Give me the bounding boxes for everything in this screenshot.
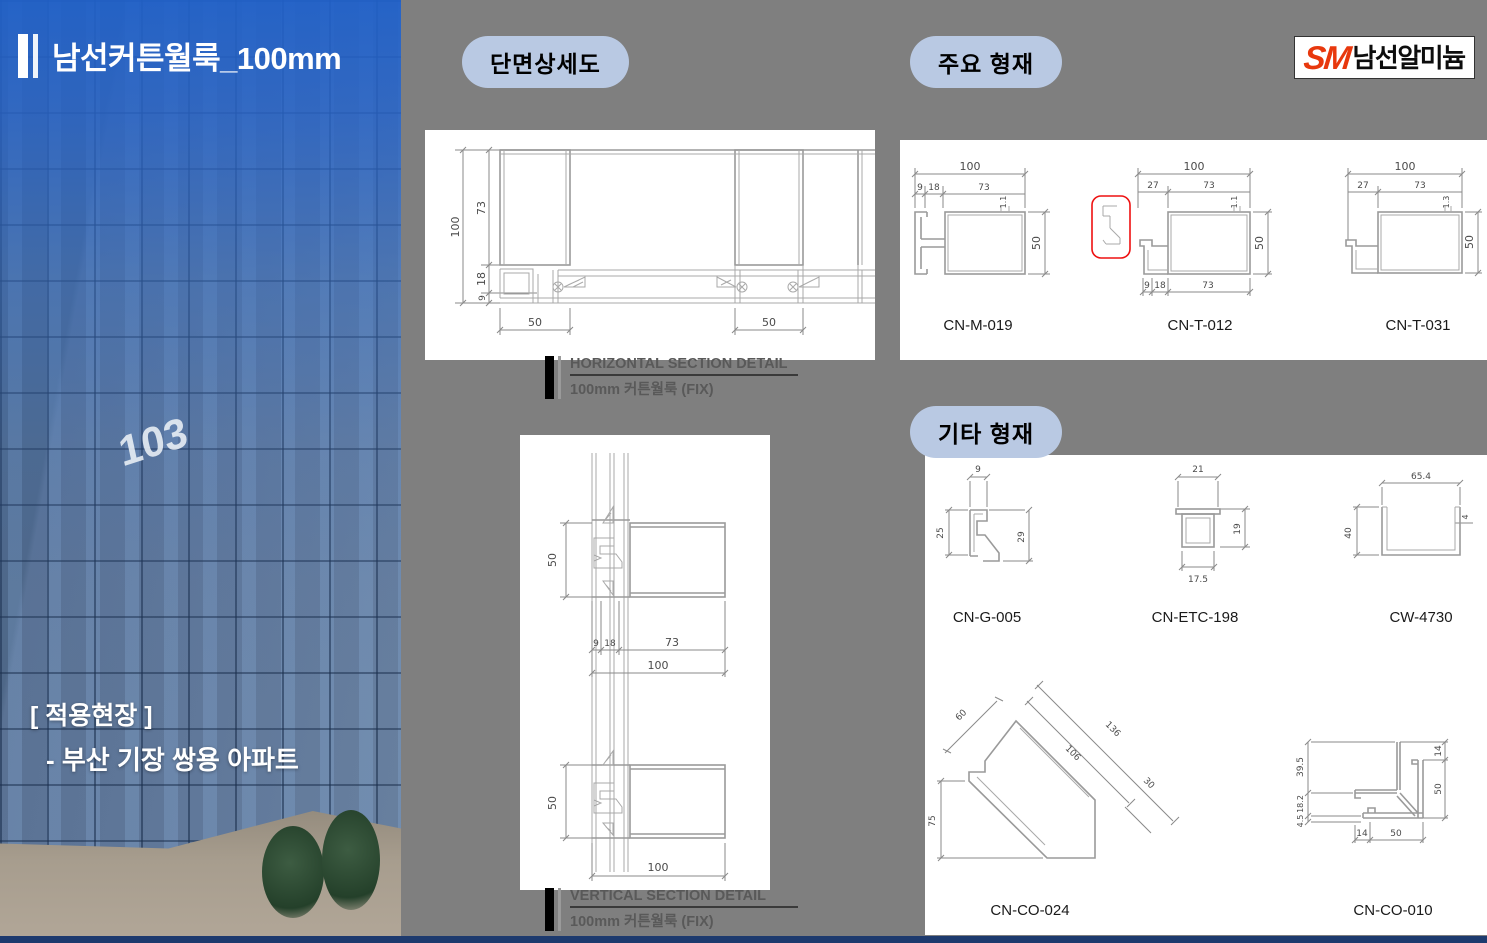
title-bar-icon [18, 34, 28, 78]
other-profiles-panel: 9 25 29 CN-G-005 21 19 17.5 [925, 455, 1487, 935]
vsec-bottom-frame [592, 765, 725, 838]
main-profiles-panel: 100 9 18 73 1.1 50 CN-M-019 [900, 140, 1487, 360]
dim-text: 50 [762, 316, 776, 329]
badge-other-profiles: 기타 형재 [910, 406, 1062, 458]
dim-text: 18.2 [1296, 795, 1305, 813]
dim-text: 18 [928, 183, 940, 193]
dim-text: 9 [593, 639, 599, 649]
vertical-caption-title: VERTICAL SECTION DETAIL [570, 888, 798, 908]
dim-text: 30 [1141, 776, 1156, 791]
cng005-inner [974, 514, 983, 552]
cnt012-inner [1148, 206, 1247, 271]
cnt031-profile [1346, 212, 1462, 273]
title-block: 남선커튼월룩_100mm [18, 33, 341, 78]
vsec-top-dim [560, 520, 592, 600]
dim-text: 18 [475, 272, 488, 286]
dim-text: 50 [1434, 783, 1444, 795]
vertical-caption-sub: 100mm 커튼월룩 (FIX) [570, 910, 798, 931]
dim-text: 73 [1414, 181, 1425, 191]
dim-text: 4 [1461, 514, 1470, 519]
vertical-caption: VERTICAL SECTION DETAIL 100mm 커튼월룩 (FIX) [545, 888, 798, 931]
horizontal-caption: HORIZONTAL SECTION DETAIL 100mm 커튼월룩 (FI… [545, 356, 798, 399]
dim-text: 18 [1154, 281, 1166, 291]
profile-code: CN-M-019 [943, 317, 1012, 334]
dim-text: 50 [1030, 236, 1043, 250]
hsec-profile-lines [500, 150, 875, 265]
dim-text: 136 [1103, 720, 1122, 739]
cnm019-profile [915, 212, 1025, 274]
application-site-label: [ 적용현장 ] [30, 696, 153, 732]
dim-text: 40 [1344, 527, 1354, 539]
dim-text: 73 [665, 636, 679, 649]
dim-text: 27 [1147, 181, 1158, 191]
dim-text: 17.5 [1188, 575, 1208, 585]
cw4730-profile [1382, 507, 1460, 555]
dim-text: 21 [1192, 465, 1203, 475]
dim-text: 1.1 [999, 196, 1008, 209]
hsec-dim-lines [455, 147, 537, 306]
cnetc198-profile [1176, 509, 1220, 547]
vsec-bottom-details [594, 751, 622, 835]
vertical-section-drawing: 50 9 18 73 100 50 [520, 435, 770, 890]
dim-text: 39.5 [1296, 757, 1306, 777]
dim-text: 100 [648, 861, 669, 874]
main-profiles-drawing: 100 9 18 73 1.1 50 CN-M-019 [900, 140, 1487, 360]
profile-code: CN-ETC-198 [1152, 609, 1239, 626]
page-title: 남선커튼월룩_100mm [52, 33, 341, 78]
gasket-details [553, 277, 819, 292]
cw4730-inner [1382, 507, 1460, 550]
profile-code: CN-CO-010 [1353, 902, 1432, 919]
profile-code: CN-CO-024 [990, 902, 1069, 919]
vertical-section-panel: 50 9 18 73 100 50 [520, 435, 770, 890]
cnt031-inner [1356, 206, 1459, 270]
badge-section-detail: 단면상세도 [462, 36, 629, 88]
caption-black-bar [545, 888, 554, 931]
cnetc198-inner [1186, 518, 1210, 543]
company-logo: SM 남선알미늄 [1294, 36, 1475, 79]
dim-text: 50 [1390, 829, 1402, 839]
building-photo: 103 [0, 0, 401, 936]
dim-text: 73 [978, 183, 989, 193]
dim-text: 50 [546, 553, 559, 567]
vsec-top-frame [592, 520, 725, 597]
other-profiles-drawing: 9 25 29 CN-G-005 21 19 17.5 [925, 455, 1487, 935]
dim-text: 65.4 [1411, 472, 1431, 482]
horizontal-caption-sub: 100mm 커튼월룩 (FIX) [570, 378, 798, 399]
cnco010-dims [1305, 739, 1448, 843]
dim-text: 1.3 [1442, 196, 1451, 209]
dim-text: 73 [1202, 281, 1213, 291]
dim-text: 73 [1203, 181, 1214, 191]
dim-text: 9 [917, 183, 923, 193]
dim-text: 18 [604, 639, 616, 649]
cnco024-profile [969, 721, 1095, 858]
dim-text: 50 [546, 796, 559, 810]
dim-text: 73 [475, 201, 488, 215]
dim-text: 9 [1144, 281, 1150, 291]
dim-text: 25 [936, 527, 946, 538]
profile-code: CW-4730 [1389, 609, 1452, 626]
tree [322, 810, 380, 910]
profile-code: CN-G-005 [953, 609, 1021, 626]
dim-text: 100 [960, 160, 981, 173]
dim-text: 29 [1017, 531, 1027, 543]
dim-text: 100 [1395, 160, 1416, 173]
cnco010-profile [1355, 742, 1423, 818]
dim-text: 19 [1233, 523, 1243, 535]
profile-code: CN-T-031 [1385, 317, 1450, 334]
tree [262, 826, 324, 918]
application-site-value: - 부산 기장 쌍용 아파트 [46, 740, 299, 777]
dim-text: 100 [648, 659, 669, 672]
horizontal-section-drawing: 100 73 18 9 [425, 130, 875, 360]
dim-text: 14 [1434, 745, 1444, 757]
dim-text: 14 [1356, 829, 1368, 839]
dim-text: 100 [449, 217, 462, 238]
caption-gray-bar [558, 356, 561, 399]
profile-code: CN-T-012 [1167, 317, 1232, 334]
caption-black-bar [545, 356, 554, 399]
dim-text: 100 [1184, 160, 1205, 173]
vsec-bottom-dim [560, 762, 592, 841]
dim-text: 4.5 [1296, 815, 1305, 828]
cnt012-clip-glyph [1103, 206, 1120, 244]
dim-text: 27 [1357, 181, 1368, 191]
blue-overlay [0, 0, 401, 936]
dim-text: 60 [954, 708, 969, 723]
dim-text: 75 [928, 815, 938, 826]
logo-company-name: 남선알미늄 [1353, 45, 1465, 71]
presentation-slide: 103 남선커튼월룩_100mm [ 적용현장 ] - 부산 기장 쌍용 아파트… [0, 0, 1487, 943]
horizontal-section-panel: 100 73 18 9 [425, 130, 875, 360]
dim-text: 50 [1463, 235, 1476, 249]
dim-text: 9 [478, 295, 488, 301]
horizontal-caption-title: HORIZONTAL SECTION DETAIL [570, 356, 798, 376]
cnm019-inner [948, 206, 1022, 271]
footer-accent-bar [0, 936, 1487, 943]
highlight-red-box [1092, 196, 1130, 258]
badge-main-profiles: 주요 형재 [910, 36, 1062, 88]
dim-text: 50 [528, 316, 542, 329]
title-bar-icon [33, 34, 38, 78]
cnt012-profile [1140, 212, 1250, 274]
logo-sm-mark: SM [1302, 41, 1351, 74]
vsec-glass-lines [592, 453, 628, 872]
dim-text: 106 [1063, 744, 1082, 763]
caption-gray-bar [558, 888, 561, 931]
cng005-dims [945, 474, 1033, 564]
dim-text: 1.1 [1230, 196, 1239, 209]
dim-text: 50 [1253, 236, 1266, 250]
hsec-bottom-dims [497, 308, 806, 335]
dim-text: 9 [975, 465, 981, 475]
